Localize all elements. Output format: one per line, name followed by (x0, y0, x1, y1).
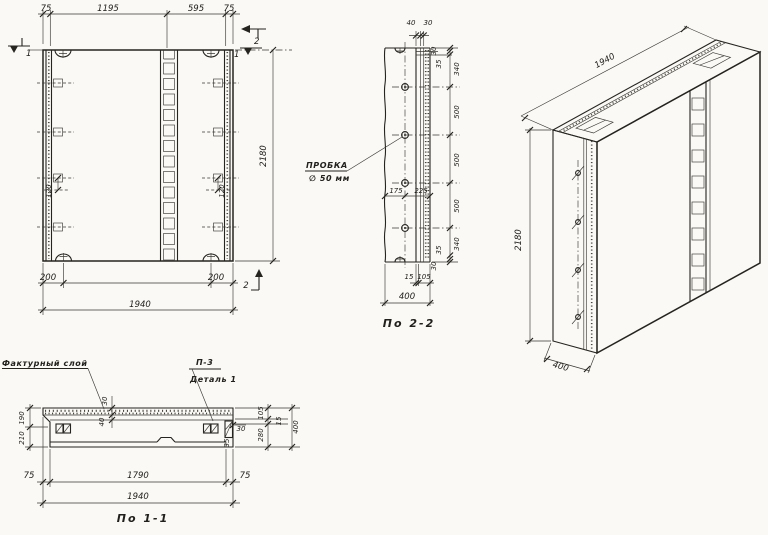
section-1-outline (43, 408, 233, 447)
detail-ref-label: П-3 (196, 358, 213, 367)
dim-280: 280 (257, 428, 265, 442)
section-mark-1-top: 1 (234, 48, 262, 60)
dim-30-bottom: 30 (430, 261, 438, 270)
dim-340-bottom: 340 (453, 237, 461, 251)
section-mark-2-top: 2 (241, 25, 266, 47)
dim-bottom-200-right: 200 (208, 273, 224, 283)
section-1-1-view: 30 35 190 210 30 40 105 15 280 400 75 17… (2, 358, 300, 525)
dim-30: 30 (424, 19, 433, 27)
dim-end-30: 30 (237, 425, 246, 433)
dim-top-75-right: 75 (224, 4, 235, 14)
dim-15: 15 (405, 273, 414, 281)
dim-15: 15 (275, 416, 283, 425)
iso-keyway-rungs (692, 98, 704, 290)
dim-bracket-right: 120 (218, 184, 226, 198)
iso-dim-2180: 2180 (514, 229, 524, 251)
dim-height-2180: 2180 (259, 145, 269, 167)
dim-75-left: 75 (24, 471, 35, 481)
end-detail-block (225, 421, 233, 438)
dim-225: 225 (414, 187, 428, 195)
front-elevation-view: 120 120 75 1195 595 75 2180 200 200 1940… (8, 4, 292, 315)
iso-top-face (553, 40, 760, 142)
iso-dim-1940: 1940 (593, 52, 617, 71)
dim-mid-40: 40 (98, 417, 106, 426)
panel-exterior-face (384, 48, 385, 262)
dim-35-bottom: 35 (435, 245, 443, 254)
dim-400: 400 (292, 420, 300, 434)
engineering-drawing-sheet: 120 120 75 1195 595 75 2180 200 200 1940… (0, 0, 768, 535)
dim-500-a: 500 (453, 105, 461, 119)
dim-105: 105 (417, 273, 431, 281)
dim-500-b: 500 (453, 153, 461, 167)
iso-dim-400: 400 (551, 360, 569, 374)
dim-top-1195: 1195 (97, 4, 119, 14)
section-mark-label: 1 (234, 50, 239, 60)
facing-layer-note: Фактурный слой (2, 359, 104, 409)
keyway-strip (161, 50, 178, 261)
dim-190: 190 (18, 411, 26, 425)
dim-1790: 1790 (127, 471, 149, 481)
section-mark-label: 2 (243, 281, 248, 291)
section-mark-2-bottom: 2 (243, 269, 263, 291)
dim-175: 175 (389, 187, 403, 195)
dim-top-595: 595 (188, 4, 204, 14)
dim-1940: 1940 (127, 492, 149, 502)
dim-bottom-200-left: 200 (40, 273, 56, 283)
dim-width-1940: 1940 (129, 300, 151, 310)
dim-400: 400 (399, 292, 415, 302)
plug-note-diameter: ∅ 50 мм (309, 174, 350, 183)
dim-end-35: 35 (223, 438, 231, 447)
iso-side-face (553, 130, 597, 353)
dim-105: 105 (257, 406, 265, 420)
section-2-2-title: По 2-2 (383, 317, 435, 330)
dim-210: 210 (18, 431, 26, 445)
panel-outline (43, 50, 233, 261)
dim-40: 40 (407, 19, 416, 27)
dim-75-right: 75 (240, 471, 251, 481)
section-2-2-view: 40 30 30 35 340 500 500 500 340 35 30 17… (305, 19, 461, 330)
facing-layer-label: Фактурный слой (2, 359, 88, 368)
lifting-loops (55, 50, 219, 261)
dim-500-c: 500 (453, 199, 461, 213)
dim-30-top: 30 (430, 46, 438, 55)
dim-340-top: 340 (453, 62, 461, 76)
plug-note-text: ПРОБКА (306, 161, 348, 170)
section-mark-label: 2 (254, 37, 259, 47)
plug-note: ПРОБКА ∅ 50 мм (305, 137, 402, 183)
dim-top-75-left: 75 (41, 4, 52, 14)
anchor-brackets (37, 79, 239, 231)
dim-35-top: 35 (435, 59, 443, 68)
isometric-view: 1940 2180 400 (514, 26, 760, 374)
dim-bracket-left: 120 (45, 184, 53, 198)
keyway-rungs (164, 63, 175, 260)
bracket-blocks (56, 424, 218, 433)
section-1-1-title: По 1-1 (117, 512, 169, 525)
section-mark-1-left: 1 (8, 38, 43, 59)
panel-working-drawing: 120 120 75 1195 595 75 2180 200 200 1940… (0, 0, 768, 535)
section-mark-label: 1 (26, 49, 31, 59)
